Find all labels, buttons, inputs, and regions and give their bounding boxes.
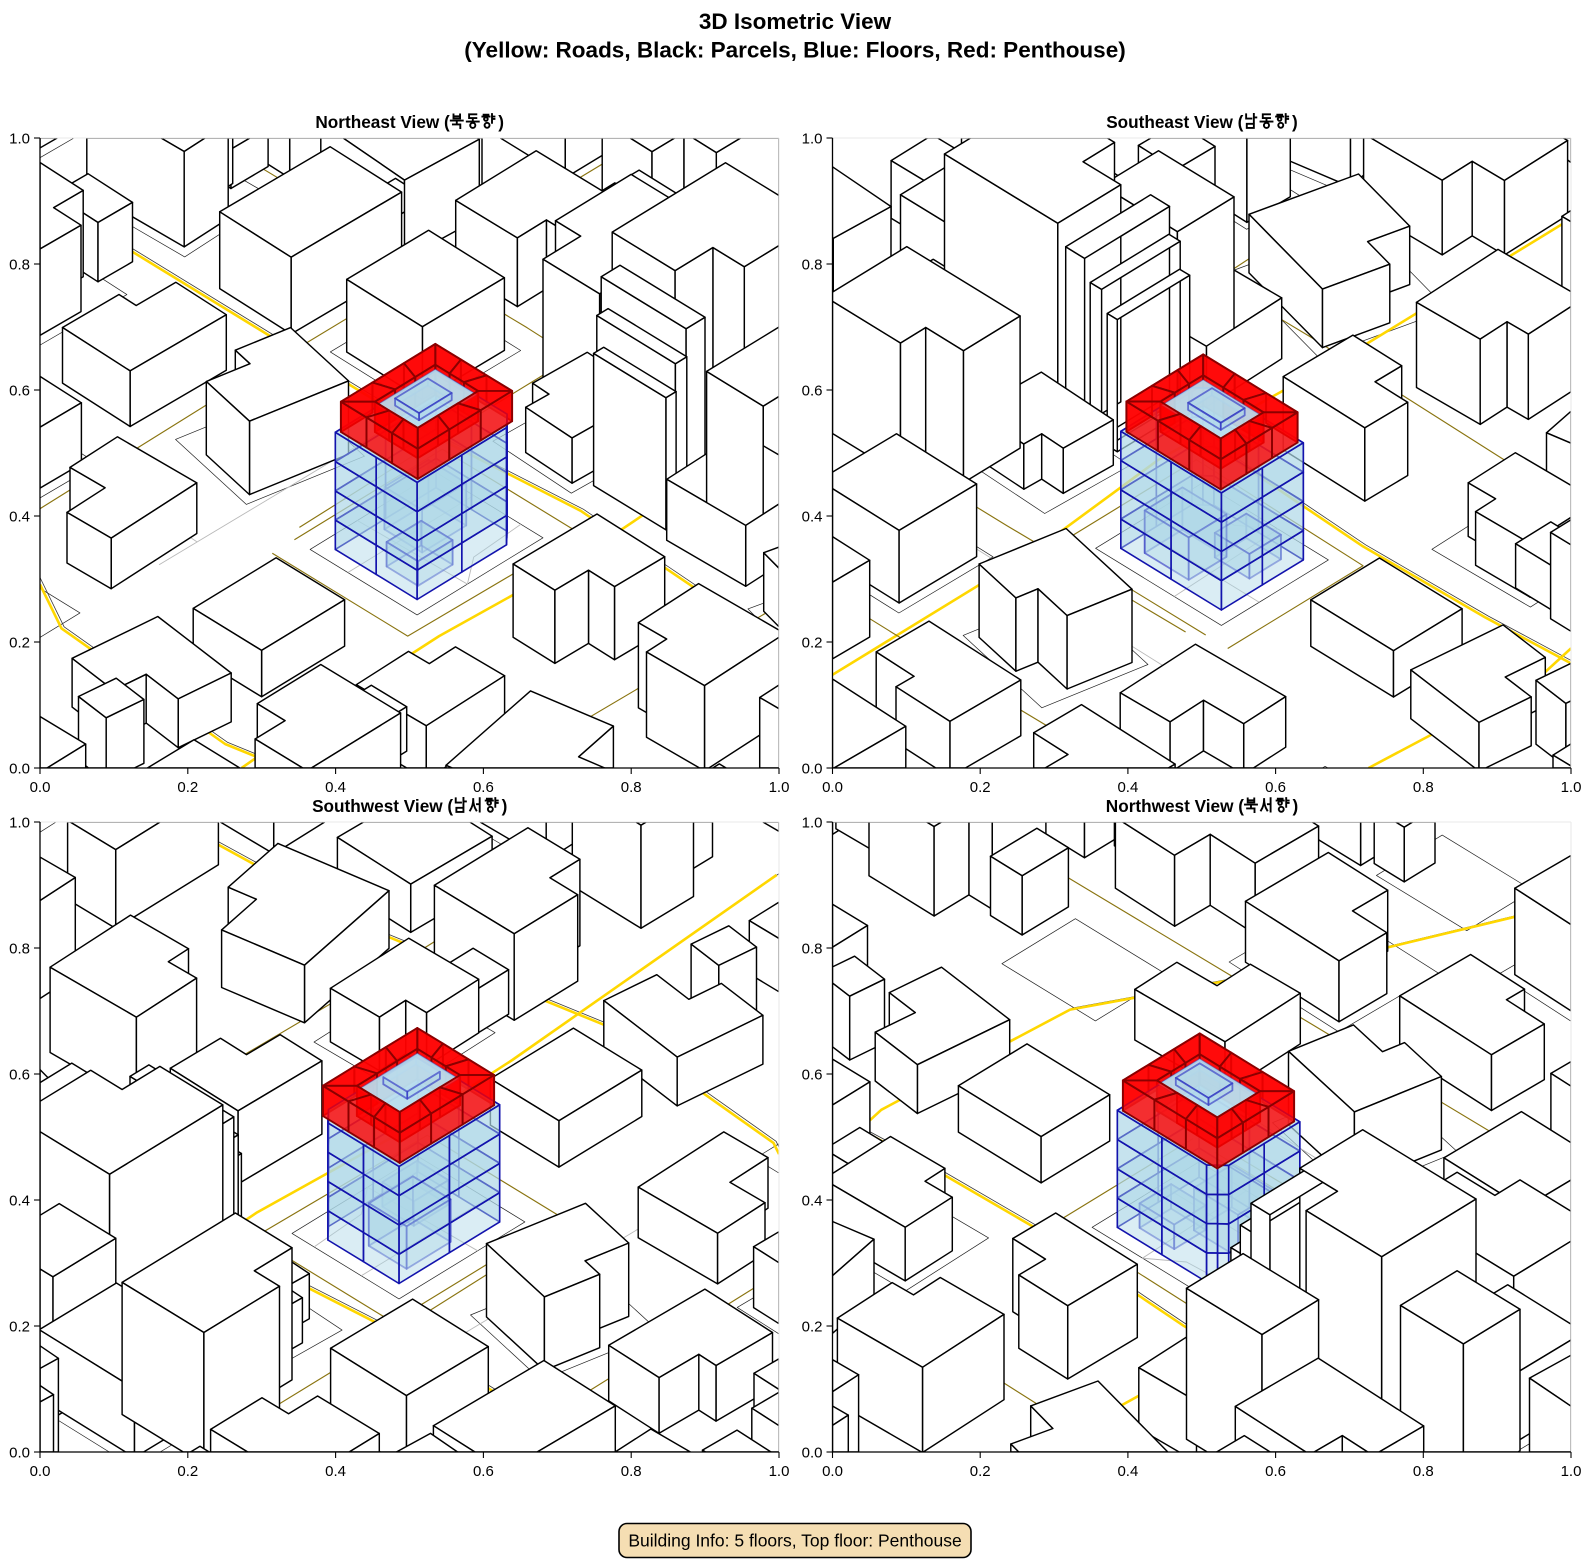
svg-text:0.2: 0.2 [970,779,991,796]
svg-text:Northeast View (: Northeast View ( [315,112,450,132]
svg-text:0.4: 0.4 [802,1193,823,1210]
svg-text:0.8: 0.8 [1413,779,1434,796]
svg-text:0.4: 0.4 [9,1193,30,1210]
svg-text:0.6: 0.6 [473,1463,494,1480]
svg-text:0.0: 0.0 [9,761,30,778]
svg-text:1.0: 1.0 [802,131,823,148]
svg-text:0.4: 0.4 [325,1463,346,1480]
svg-text:): ) [1293,796,1299,816]
svg-text:Building Info: 5 floors, Top f: Building Info: 5 floors, Top floor: Pent… [628,1531,961,1551]
svg-text:): ) [1292,112,1298,132]
svg-text:0.8: 0.8 [802,941,823,958]
svg-text:0.8: 0.8 [621,779,642,796]
svg-text:0.2: 0.2 [802,1319,823,1336]
svg-text:0.8: 0.8 [802,257,823,274]
svg-text:0.6: 0.6 [802,383,823,400]
svg-text:0.6: 0.6 [1265,1463,1286,1480]
svg-text:0.2: 0.2 [177,779,198,796]
svg-text:0.0: 0.0 [822,1463,843,1480]
svg-text:1.0: 1.0 [1561,779,1582,796]
svg-text:0.4: 0.4 [1117,779,1138,796]
svg-text:0.8: 0.8 [9,257,30,274]
svg-text:1.0: 1.0 [1561,1463,1582,1480]
svg-text:(Yellow: Roads, Black: Parcels: (Yellow: Roads, Black: Parcels, Blue: Fl… [464,38,1125,63]
svg-text:1.0: 1.0 [9,815,30,832]
svg-text:0.4: 0.4 [9,509,30,526]
svg-text:0.0: 0.0 [30,1463,51,1480]
svg-text:0.8: 0.8 [621,1463,642,1480]
svg-text:1.0: 1.0 [9,131,30,148]
svg-text:Southeast View (: Southeast View ( [1106,112,1243,132]
svg-text:0.6: 0.6 [9,383,30,400]
svg-text:Southwest View (: Southwest View ( [312,796,453,816]
svg-text:0.2: 0.2 [970,1463,991,1480]
svg-text:0.2: 0.2 [177,1463,198,1480]
svg-text:Northwest View (: Northwest View ( [1106,796,1244,816]
svg-text:0.0: 0.0 [822,779,843,796]
svg-text:3D Isometric View: 3D Isometric View [699,9,892,34]
svg-text:0.0: 0.0 [9,1445,30,1462]
svg-text:1.0: 1.0 [769,1463,790,1480]
svg-text:0.8: 0.8 [1413,1463,1434,1480]
svg-text:0.4: 0.4 [1117,1463,1138,1480]
svg-text:0.2: 0.2 [802,635,823,652]
svg-text:0.2: 0.2 [9,635,30,652]
svg-text:): ) [502,796,508,816]
svg-text:0.6: 0.6 [9,1067,30,1084]
svg-text:0.0: 0.0 [802,1445,823,1462]
svg-text:0.8: 0.8 [9,941,30,958]
svg-text:0.4: 0.4 [325,779,346,796]
svg-text:0.4: 0.4 [802,509,823,526]
svg-text:0.6: 0.6 [802,1067,823,1084]
svg-text:0.6: 0.6 [1265,779,1286,796]
svg-text:0.0: 0.0 [802,761,823,778]
svg-text:1.0: 1.0 [769,779,790,796]
svg-text:0.6: 0.6 [473,779,494,796]
svg-text:1.0: 1.0 [802,815,823,832]
svg-text:0.2: 0.2 [9,1319,30,1336]
svg-text:0.0: 0.0 [30,779,51,796]
svg-text:): ) [498,112,504,132]
